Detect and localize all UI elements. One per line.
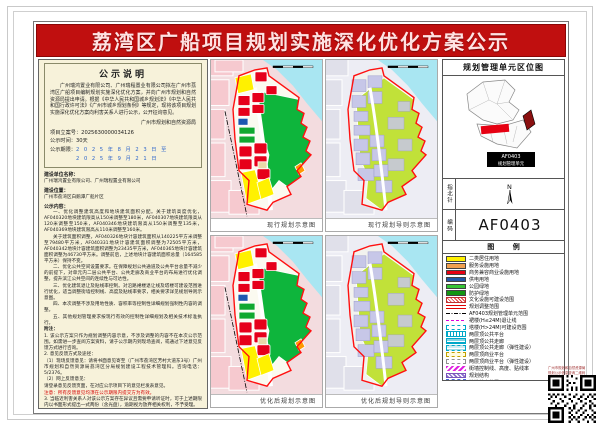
- period-start: 2 0 2 5 年 8 月 2 3 日 至: [76, 147, 168, 153]
- map-panel-current-guideline: 现行规划导则示意图: [325, 59, 438, 232]
- notice-column: 公示说明 广州瑞鸿置业有限公司、广州瑞程置业有限公司拟在广州市荔湾区广船项目编制…: [38, 59, 208, 409]
- legend-swatch-icon: [446, 263, 466, 269]
- content-paragraph: 一、优化调整建筑高度和地块建筑面积分配。关于建筑高度优化，AF040320地块建…: [44, 210, 202, 234]
- content-paragraph: 关于建筑面积调整，AF040326地块计容建筑面积从140225平方米调整至79…: [44, 235, 202, 265]
- notice-box-title: 公示说明: [50, 67, 196, 80]
- current-guideline-map: [326, 60, 437, 218]
- map-caption: 优化后规划示意图: [211, 394, 322, 407]
- legend-item: 供电用地: [446, 276, 561, 283]
- period-label: 公示期限：: [50, 147, 76, 153]
- legend-swatch-icon: [446, 318, 466, 324]
- legend-swatch-icon: [446, 366, 466, 372]
- note-paragraph: 2. 意见反馈方式及途径：: [44, 352, 202, 358]
- legend-title: 图 例: [443, 241, 564, 254]
- case-number-value: 2025630000034126: [81, 130, 134, 136]
- legend-item: 商务兼容商业设施用地: [446, 269, 561, 276]
- content-paragraph: 四、本次调整不涉及用地性质、容积率等控制性详细规划强制性内容的调整。: [44, 302, 202, 314]
- unit-location-map: AF0403 规划管理单元: [443, 76, 564, 179]
- qr-code-image: [548, 375, 596, 423]
- duration-label: 公示时间：: [50, 138, 76, 144]
- map-panel-optimized-guideline: 优化后规划导则示意图: [325, 235, 438, 408]
- unit-code-value: AF0403: [456, 210, 564, 240]
- qr-code: [548, 375, 596, 423]
- legend-swatch-icon: [446, 284, 466, 290]
- legend-swatch-icon: [446, 379, 466, 380]
- applicant-value: 广州瑞鸿置业有限公司、广州瑞程置业有限公司: [44, 179, 202, 185]
- period-line: 公示期限：2 0 2 5 年 8 月 2 3 日 至: [50, 146, 196, 153]
- legend-swatch-icon: [446, 338, 466, 344]
- map-panel-optimized-plan: 优化后规划示意图: [210, 235, 323, 408]
- legend-label: 地铁站点位置: [469, 379, 499, 380]
- legend-swatch-icon: [446, 270, 466, 276]
- unit-code-row: 编码 AF0403: [443, 210, 564, 241]
- period-end: 2 0 2 5 年 9 月 2 1 日: [76, 156, 158, 162]
- qr-caption-line1: 广州市规划和自然资源局: [548, 366, 598, 370]
- notice-signature: 广州市规划和自然资源局: [50, 119, 196, 126]
- location-value: 广州市荔湾区白鹅潭广船片区: [44, 195, 202, 201]
- sidebar: 规划管理单元区位图 AF0403 规划管理单元 指北针 N 编码 AF0403: [442, 59, 565, 381]
- notice-content-list: 一、优化调整建筑高度和地块建筑面积分配。关于建筑高度优化，AF040320地块建…: [44, 210, 202, 326]
- legend-swatch-icon: [446, 305, 466, 310]
- legend-list: 二类居住用地服务设施用地商务兼容商业设施用地供电用地公园绿地防护绿地文化设施可建…: [443, 254, 564, 380]
- legend-swatch-icon: [446, 277, 466, 283]
- compass-label: 指北针: [443, 179, 456, 209]
- applicant-label: 建设单位名称：: [44, 171, 202, 178]
- content-paragraph: 三、优化建筑退让及贴线率控制。对沿路裙楼退让线及塔楼可建设范围进行优化，适当调整…: [44, 284, 202, 302]
- locmap-label-line1: AF0403: [501, 154, 520, 160]
- legend-swatch-icon: [446, 359, 466, 365]
- current-plan-map: [211, 60, 322, 218]
- content-label: 公示内容：: [44, 203, 202, 210]
- map-caption: 优化后规划导则示意图: [326, 394, 437, 407]
- notice-paragraph: 广州瑞鸿置业有限公司、广州瑞程置业有限公司拟在广州市荔湾区广船项目编制规划实施深…: [50, 83, 196, 117]
- locmap-label-line2: 规划管理单元: [498, 160, 525, 167]
- legend-swatch-icon: [446, 373, 466, 379]
- map-caption: 现行规划示意图: [211, 218, 322, 231]
- legend-swatch-icon: [446, 311, 466, 317]
- unit-code-label: 编码: [443, 210, 456, 240]
- note-paragraph: 注意：所有反馈意见均须在公示期限内提交方为有效。: [44, 391, 202, 397]
- content-paragraph: 二、优化公共空间设置要求。在保障规划公共通道及公共平台总量不减少的前提下，对单元…: [44, 265, 202, 283]
- legend-swatch-icon: [446, 297, 466, 303]
- note-paragraph: 3. 当临近利害关系人对该公示方案存在异议且需要申请听证时，可于上述期限内以书面…: [44, 397, 202, 409]
- map-panel-current-plan: 现行规划示意图: [210, 59, 323, 232]
- content-paragraph: 五、其他规划管理要求按现行有效的控制性详细规划及相关技术标准执行。: [44, 315, 202, 327]
- map-caption: 现行规划导则示意图: [326, 218, 437, 231]
- north-letter: N: [507, 183, 512, 191]
- legend-swatch-icon: [446, 345, 466, 351]
- notice-notes-list: 附注：1. 该公示方案只作为规划调整内容示意，不涉及调整的内容不在本次公示范围。…: [44, 327, 202, 409]
- period-line-2: 2 0 2 5 年 9 月 2 1 日: [50, 155, 196, 162]
- note-paragraph: 1. 该公示方案只作为规划调整内容示意，不涉及调整的内容不在本次公示范围。如需进…: [44, 334, 202, 352]
- plan-maps-grid: 现行规划示意图 现行规划导则示意图 优化后规划示意图 优化后规划导则示意图: [210, 59, 440, 409]
- note-paragraph: 请登录意见反馈页面，在对应公示项目下的意见栏发表意见。: [44, 384, 202, 390]
- legend-swatch-icon: [446, 290, 466, 296]
- qr-block: 广州市规划和自然资源局 规划公示信息查询二维码: [538, 366, 598, 424]
- north-arrow-icon: N: [499, 181, 521, 207]
- page-title: 荔湾区广船项目规划实施深化优化方案公示: [36, 24, 566, 57]
- legend-swatch-icon: [446, 256, 466, 262]
- public-notice-poster: { "banner": { "title": "荔湾区广船项目规划实施深化优化方…: [0, 0, 600, 424]
- duration-line: 公示时间：30天: [50, 137, 196, 144]
- legend-item: 二类居住用地: [446, 256, 561, 263]
- compass-row: 指北针 N: [443, 179, 564, 210]
- sidebar-title: 规划管理单元区位图: [443, 60, 564, 76]
- note-paragraph: （2）网上反馈意见：: [44, 377, 202, 383]
- notice-explanation-box: 公示说明 广州瑞鸿置业有限公司、广州瑞程置业有限公司拟在广州市荔湾区广船项目编制…: [44, 63, 202, 168]
- optimized-plan-map: [211, 236, 322, 394]
- legend-swatch-icon: [446, 331, 466, 337]
- case-number-line: 项目立案号：2025630000034126: [50, 129, 196, 136]
- case-number-label: 项目立案号：: [50, 130, 81, 136]
- legend-swatch-icon: [446, 325, 466, 331]
- legend-swatch-icon: [446, 352, 466, 358]
- legend-item: 公园绿地: [446, 283, 561, 290]
- location-label: 建设位置：: [44, 187, 202, 194]
- note-paragraph: （1）现场反馈意见：请将书面意见寄至（广州市荔湾区芳村大道东3号）广州市规划和自…: [44, 359, 202, 377]
- note-paragraph: 附注：: [44, 327, 202, 333]
- optimized-guideline-map: [326, 236, 437, 394]
- duration-value: 30天: [76, 138, 88, 144]
- district-location-map: AF0403 规划管理单元: [443, 76, 564, 176]
- legend-item: 文化设施可建设范围: [446, 297, 561, 304]
